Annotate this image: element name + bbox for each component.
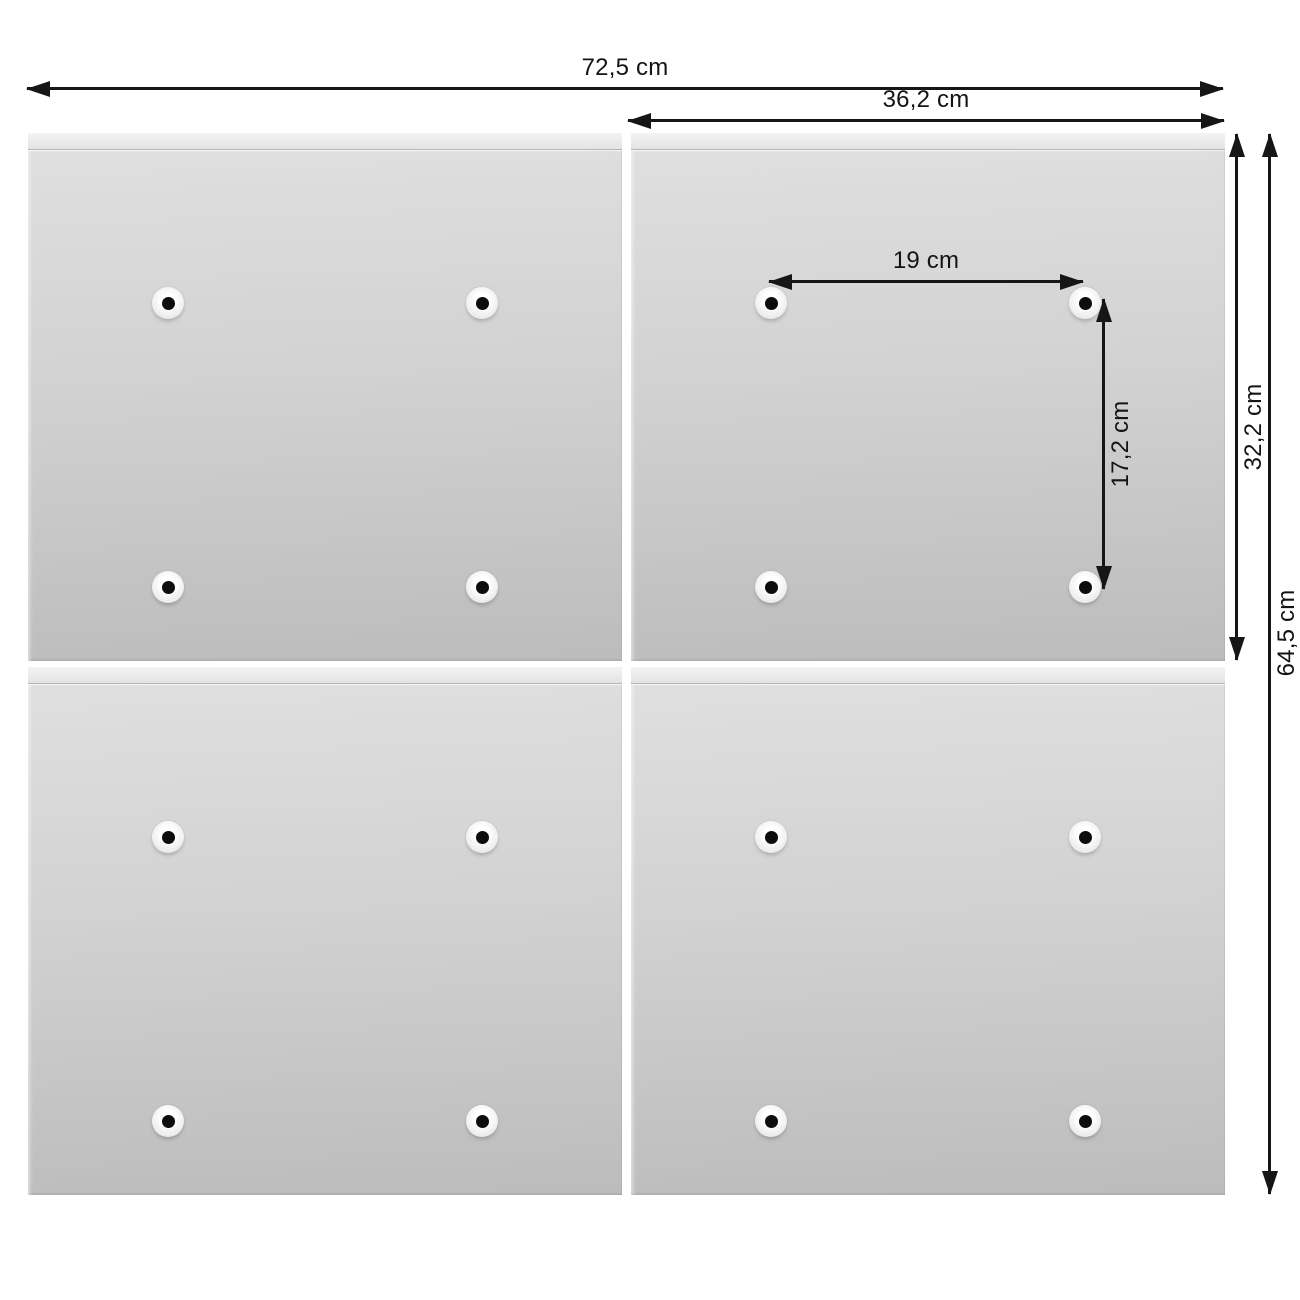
dim-arrow-right-panel-width: 36,2 cm: [628, 119, 1224, 122]
mounting-hole: [466, 821, 498, 853]
hole-dot: [476, 831, 489, 844]
mounting-hole: [466, 287, 498, 319]
mounting-hole: [755, 571, 787, 603]
dim-label-hole-spacing-vertical: 17,2 cm: [1107, 401, 1135, 488]
mounting-hole: [152, 571, 184, 603]
hole-dot: [476, 581, 489, 594]
mounting-hole: [755, 821, 787, 853]
hole-dot: [1079, 831, 1092, 844]
hole-dot: [1079, 581, 1092, 594]
dim-label-panel-height: 32,2 cm: [1240, 384, 1268, 471]
hole-dot: [476, 297, 489, 310]
panel-bottom-right: [631, 667, 1225, 1195]
mounting-hole: [466, 1105, 498, 1137]
dim-arrow-hole-spacing-horizontal: 19 cm: [769, 280, 1083, 283]
panel-top-edge: [28, 133, 622, 150]
dim-label-total-height: 64,5 cm: [1273, 590, 1300, 677]
panel-top-edge: [631, 133, 1225, 150]
dim-arrow-hole-spacing-vertical: 17,2 cm: [1102, 299, 1105, 589]
dim-arrow-total-width: 72,5 cm: [27, 87, 1223, 90]
hole-dot: [765, 831, 778, 844]
mounting-hole: [152, 821, 184, 853]
hole-dot: [765, 581, 778, 594]
dim-arrow-panel-height: 32,2 cm: [1235, 134, 1238, 660]
dim-label-total-width: 72,5 cm: [582, 54, 669, 82]
hole-dot: [765, 297, 778, 310]
hole-dot: [162, 297, 175, 310]
hole-dot: [765, 1115, 778, 1128]
panel-top-right: [631, 133, 1225, 661]
mounting-hole: [1069, 1105, 1101, 1137]
mounting-hole: [152, 287, 184, 319]
panel-bottom-left: [28, 667, 622, 1195]
mounting-hole: [755, 1105, 787, 1137]
panel-top-edge: [631, 667, 1225, 684]
panel-top-edge: [28, 667, 622, 684]
panel-top-left: [28, 133, 622, 661]
hole-dot: [1079, 297, 1092, 310]
dim-label-right-panel-width: 36,2 cm: [883, 86, 970, 114]
hole-dot: [476, 1115, 489, 1128]
mounting-hole: [1069, 821, 1101, 853]
hole-dot: [162, 581, 175, 594]
mounting-hole: [466, 571, 498, 603]
panel-dimension-diagram: 72,5 cm 36,2 cm 19 cm 17,2 cm 32,2 cm 64…: [0, 0, 1300, 1300]
mounting-hole: [152, 1105, 184, 1137]
hole-dot: [162, 831, 175, 844]
mounting-hole: [755, 287, 787, 319]
dim-label-hole-spacing-horizontal: 19 cm: [893, 247, 959, 275]
hole-dot: [162, 1115, 175, 1128]
dim-arrow-total-height: 64,5 cm: [1268, 134, 1271, 1194]
hole-dot: [1079, 1115, 1092, 1128]
